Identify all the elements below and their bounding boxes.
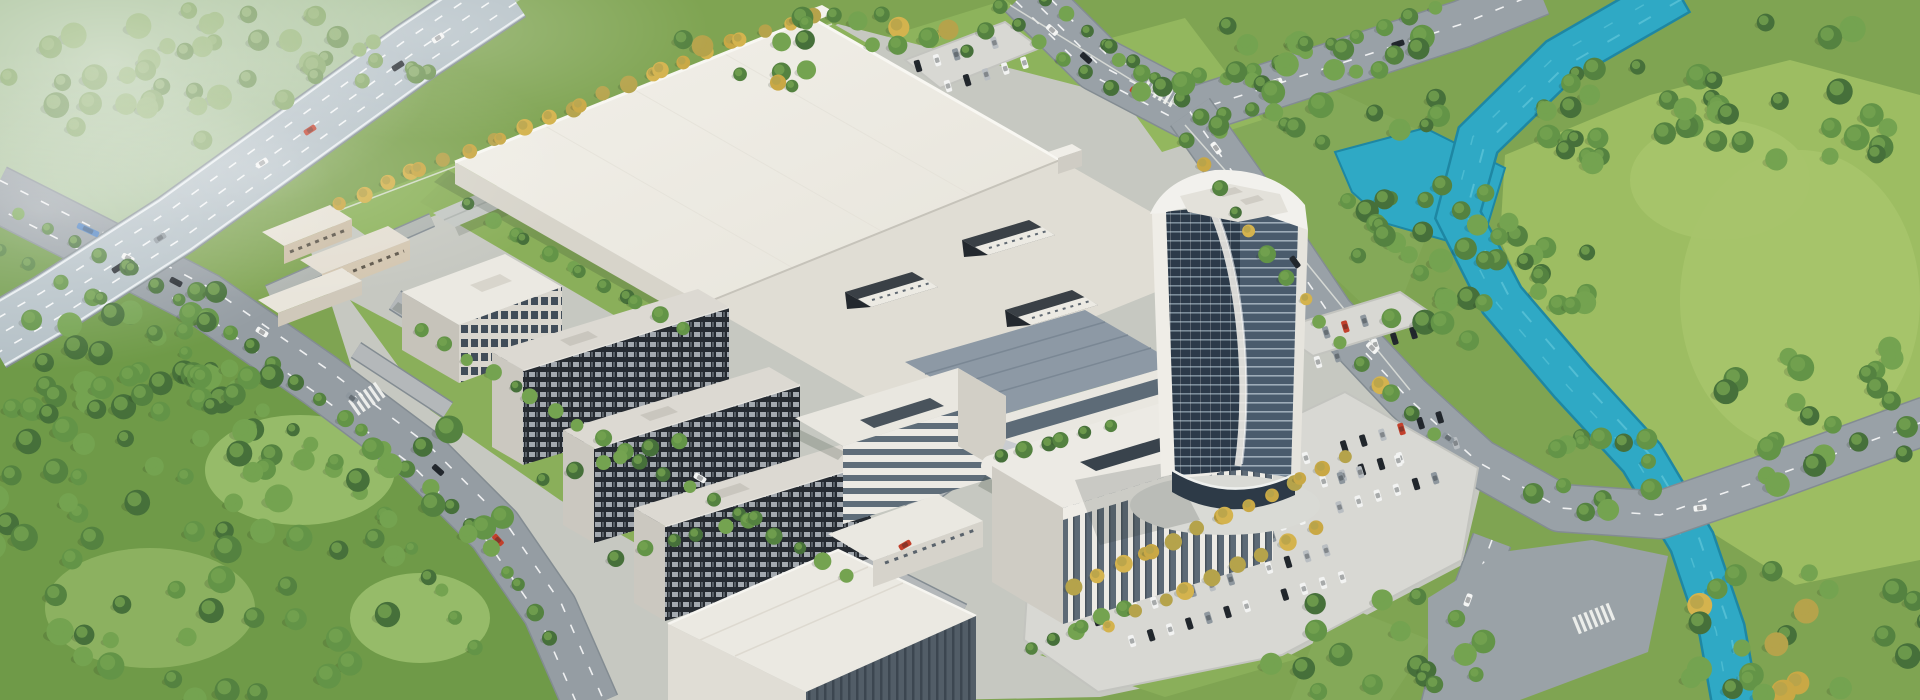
render-layers [0,0,1920,700]
scene-svg [0,0,1920,700]
aerial-campus-render [0,0,1920,700]
